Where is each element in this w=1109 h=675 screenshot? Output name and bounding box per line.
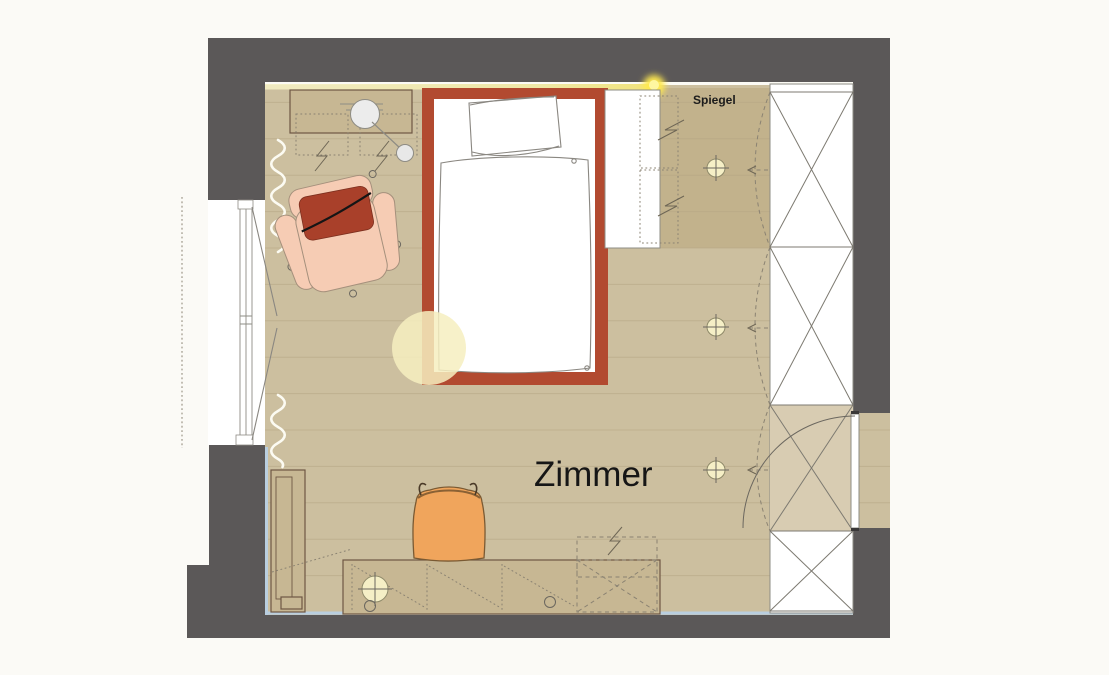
desk-chair — [413, 484, 485, 561]
reading-light-glow — [392, 311, 466, 385]
floor-plan-svg: Spiegel — [0, 0, 1109, 675]
wall-liner-left — [265, 447, 268, 615]
bed — [392, 88, 608, 385]
chair-seat — [413, 487, 485, 561]
pillow — [469, 96, 561, 156]
door-leaf — [851, 414, 859, 528]
shelf-cabinet — [271, 470, 305, 612]
mirror-label: Spiegel — [693, 93, 736, 107]
room-label: Zimmer — [534, 455, 653, 494]
floor-plan-page: Spiegel — [0, 0, 1109, 675]
wardrobe — [770, 84, 853, 613]
